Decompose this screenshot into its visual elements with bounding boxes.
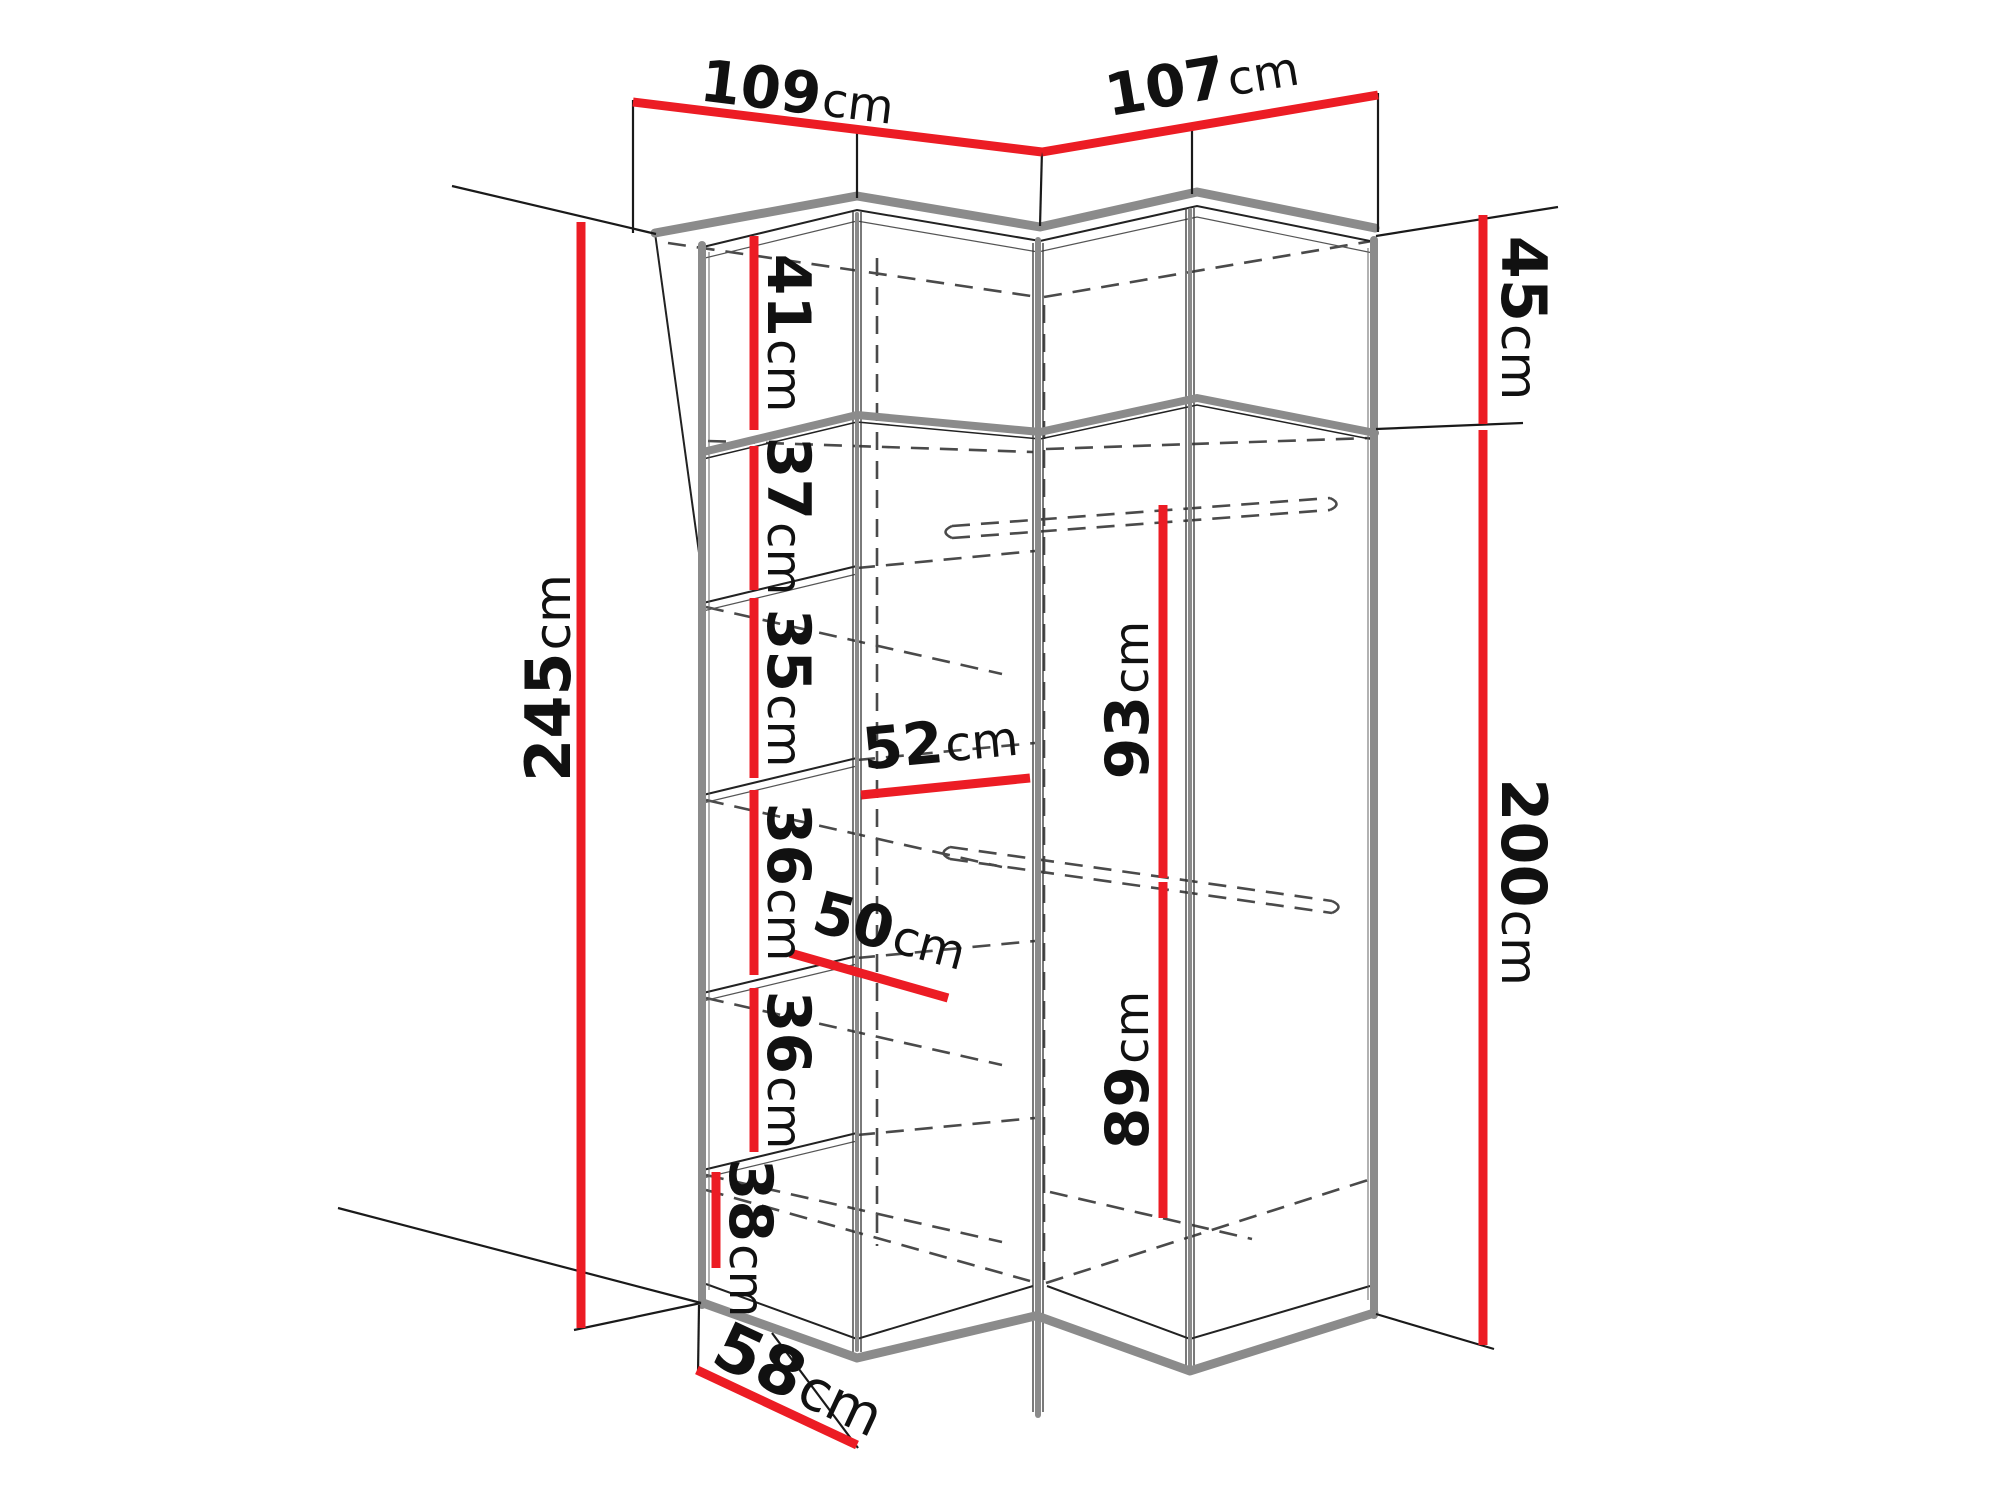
ext-height-bottom-left (574, 1303, 701, 1330)
dim-label-hang-bottom: 89cm (1093, 991, 1163, 1150)
dim-label-main-height: 200cm (1487, 778, 1560, 986)
dim-label-total-height: 245cm (512, 574, 585, 782)
wall-line-bottom-left (338, 1208, 701, 1303)
dim-label-shelf-gap-3: 35cm (753, 609, 823, 768)
hanging-rail-bottom (944, 847, 1339, 913)
ext-upper-shelf-right (1376, 423, 1523, 429)
dim-label-side-depth: 58cm (702, 1307, 897, 1453)
corner-shelf-edges (857, 551, 1035, 1135)
wardrobe-drawing: 109cm 107cm 245cm 45cm 200cm 41cm 37cm 3… (0, 0, 2000, 1500)
dim-label-shelf-gap-6: 38cm (715, 1159, 785, 1318)
dimension-diagram: 109cm 107cm 245cm 45cm 200cm 41cm 37cm 3… (0, 0, 2000, 1500)
hanging-rail-top (946, 498, 1337, 538)
dim-label-shelf-gap-2: 37cm (753, 437, 823, 596)
wall-line-top-right (1376, 207, 1558, 236)
wall-line-top-left (452, 186, 656, 234)
dim-label-shelf-gap-5: 36cm (753, 991, 823, 1150)
ext-height-bottom-right (1376, 1314, 1494, 1349)
ext-corner-vertex (1040, 150, 1042, 226)
dim-label-corner-width: 52cm (859, 701, 1021, 784)
shelf-back-edge-top-right (1046, 438, 1370, 449)
dim-label-hang-top: 93cm (1093, 621, 1163, 780)
dimension-lines (581, 95, 1483, 1445)
ext-depth-back (698, 1305, 699, 1374)
dim-label-shelf-gap-1: 41cm (753, 254, 823, 413)
left-side-sliver (655, 233, 700, 560)
dim-label-top-width-left: 109cm (697, 47, 899, 138)
dim-label-upper-height: 45cm (1487, 236, 1560, 400)
partition-edges (853, 208, 1194, 1412)
top-edge (655, 192, 1375, 233)
